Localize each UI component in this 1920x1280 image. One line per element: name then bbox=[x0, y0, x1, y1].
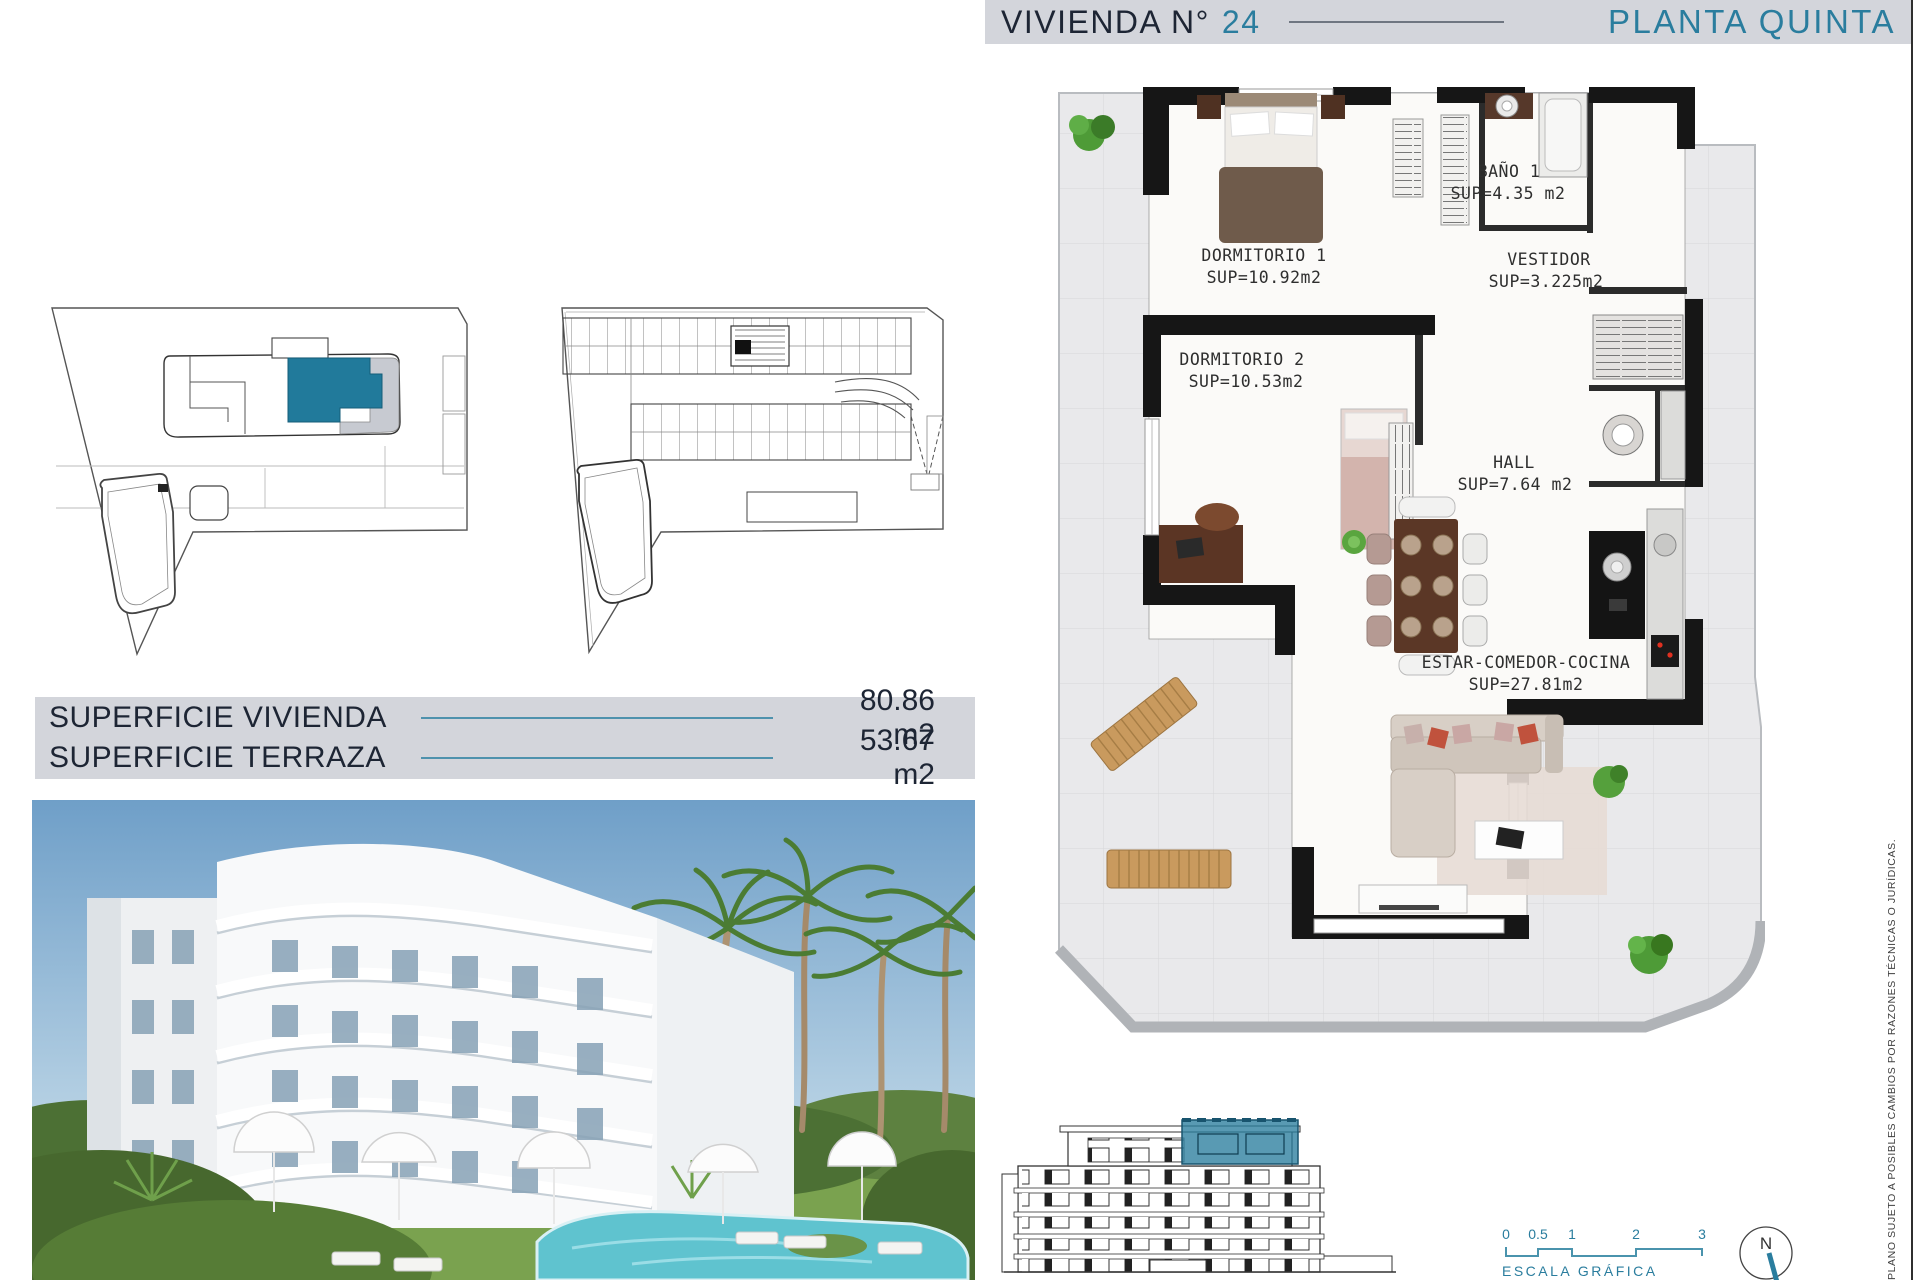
room-sup-hall: SUP=7.64 m2 bbox=[1458, 475, 1573, 494]
scale-bar: 0 0.5 1 2 3 ESCALA GRÁFICA bbox=[1494, 1226, 1734, 1280]
header-rule bbox=[1289, 21, 1504, 23]
sheet-header: VIVIENDA N° 24 PLANTA QUINTA bbox=[985, 0, 1912, 44]
scale-tick: 0.5 bbox=[1528, 1226, 1548, 1242]
scale-tick: 2 bbox=[1632, 1226, 1640, 1242]
scale-tick: 1 bbox=[1568, 1226, 1576, 1242]
room-label-bano-1: BAÑO 1 bbox=[1478, 162, 1541, 181]
surface-value: 53.67 m2 bbox=[813, 724, 961, 792]
surface-label: SUPERFICIE VIVIENDA bbox=[49, 701, 421, 735]
surface-label: SUPERFICIE TERRAZA bbox=[49, 741, 421, 775]
pool-outline bbox=[100, 474, 175, 613]
page-border bbox=[1911, 0, 1913, 1280]
room-label-dormitorio-1: DORMITORIO 1 bbox=[1201, 246, 1326, 265]
floor-label: PLANTA QUINTA bbox=[1608, 3, 1896, 41]
scale-label: ESCALA GRÁFICA bbox=[1502, 1263, 1658, 1279]
footprint-annex bbox=[272, 338, 328, 358]
site-plan-parking bbox=[535, 296, 971, 668]
site-plan-location bbox=[40, 296, 532, 668]
room-sup-bano-1: SUP=4.35 m2 bbox=[1451, 184, 1566, 203]
leader-line bbox=[421, 757, 773, 759]
room-sup-vestidor: SUP=3.225m2 bbox=[1489, 272, 1604, 291]
unit-number: 24 bbox=[1222, 4, 1261, 41]
room-sup-estar-comedor-cocina: SUP=27.81m2 bbox=[1469, 675, 1584, 694]
room-label-hall: HALL bbox=[1493, 453, 1535, 472]
scale-tick: 3 bbox=[1698, 1226, 1706, 1242]
photo-rendering bbox=[32, 800, 975, 1280]
room-label-estar-comedor-cocina: ESTAR-COMEDOR-COCINA bbox=[1422, 653, 1631, 672]
unit-highlight-elevation bbox=[1182, 1120, 1298, 1164]
surface-row-terraza: SUPERFICIE TERRAZA 53.67 m2 bbox=[49, 739, 961, 777]
sheet-title: VIVIENDA N° bbox=[1001, 4, 1210, 41]
floor-plan: DORMITORIO 1 SUP=10.92m2 BAÑO 1 SUP=4.35… bbox=[1049, 79, 1765, 1062]
compass-needle bbox=[1769, 1253, 1783, 1280]
room-sup-dormitorio-1: SUP=10.92m2 bbox=[1207, 268, 1322, 287]
plan-sheet: VIVIENDA N° 24 PLANTA QUINTA bbox=[0, 0, 1920, 1280]
scale-tick: 0 bbox=[1502, 1226, 1510, 1242]
north-indicator: N bbox=[1760, 1234, 1772, 1253]
room-label-dormitorio-2: DORMITORIO 2 bbox=[1179, 350, 1304, 369]
disclaimer-vertical: PLANO SUJETO A POSIBLES CAMBIOS POR RAZO… bbox=[1886, 820, 1904, 1280]
room-label-vestidor: VESTIDOR bbox=[1507, 250, 1590, 269]
surface-table: SUPERFICIE VIVIENDA 80.86 m2 SUPERFICIE … bbox=[35, 697, 975, 779]
room-sup-dormitorio-2: SUP=10.53m2 bbox=[1189, 372, 1304, 391]
disclaimer-text: PLANO SUJETO A POSIBLES CAMBIOS POR RAZO… bbox=[1886, 839, 1898, 1280]
leader-line bbox=[421, 717, 773, 719]
compass: N bbox=[1736, 1226, 1798, 1280]
sun-lounger bbox=[1107, 850, 1231, 888]
elevation-drawing bbox=[1000, 1100, 1400, 1280]
